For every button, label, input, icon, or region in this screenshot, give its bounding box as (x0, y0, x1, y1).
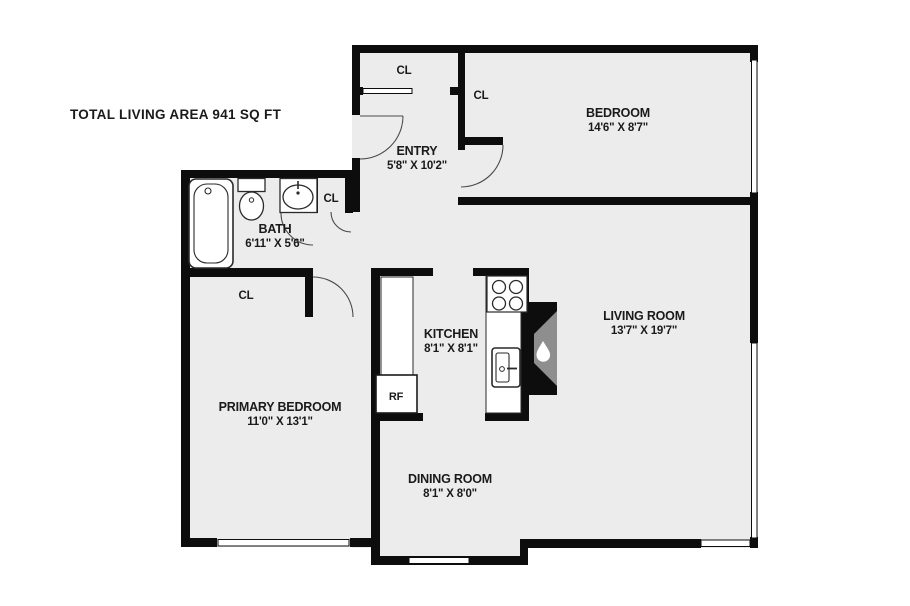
primary-name: PRIMARY BEDROOM (219, 400, 342, 415)
refrigerator-label: RF (389, 391, 403, 403)
floor-plan: TOTAL LIVING AREA 941 SQ FT ENTRY 5'8" X… (0, 0, 910, 606)
door-arc-bedroom (461, 145, 503, 187)
door-arc-primary (313, 277, 353, 317)
room-label-bedroom: BEDROOM 14'6" X 8'7" (586, 106, 650, 136)
living-name: LIVING ROOM (603, 309, 685, 324)
window-dining-south (409, 558, 469, 564)
window-living-south (701, 540, 750, 547)
entry-dims: 5'8" X 10'2" (387, 159, 447, 174)
closet-entry-bifold (363, 89, 412, 94)
room-label-entry: ENTRY 5'8" X 10'2" (387, 144, 447, 174)
kitchen-sink-icon (492, 348, 520, 387)
toilet-icon (238, 179, 265, 221)
stove-icon (487, 276, 527, 312)
closet-label-hall: CL (324, 193, 339, 205)
bath-dims: 6'11" X 5'6" (245, 237, 304, 252)
bath-name: BATH (245, 222, 304, 237)
closet-label-entry: CL (397, 65, 412, 77)
window-bedroom-east (752, 60, 758, 193)
bathtub-icon (189, 179, 233, 268)
living-dims: 13'7" X 19'7" (603, 324, 685, 339)
dining-dims: 8'1" X 8'0" (408, 487, 492, 502)
room-label-primary: PRIMARY BEDROOM 11'0" X 13'1" (219, 400, 342, 430)
bath-sink-icon (280, 179, 317, 213)
primary-dims: 11'0" X 13'1" (219, 415, 342, 430)
fireplace (529, 302, 557, 395)
room-label-kitchen: KITCHEN 8'1" X 8'1" (424, 327, 478, 357)
entry-name: ENTRY (387, 144, 447, 159)
fixtures-overlay (0, 0, 910, 606)
closet-label-bedroom: CL (474, 90, 489, 102)
kitchen-name: KITCHEN (424, 327, 478, 342)
kitchen-counter-left (381, 277, 413, 375)
room-label-dining: DINING ROOM 8'1" X 8'0" (408, 472, 492, 502)
window-primary-south (218, 540, 349, 547)
kitchen-dims: 8'1" X 8'1" (424, 342, 478, 357)
bedroom-name: BEDROOM (586, 106, 650, 121)
door-arc-hall-closet (331, 212, 351, 232)
room-label-bath: BATH 6'11" X 5'6" (245, 222, 304, 252)
room-label-living: LIVING ROOM 13'7" X 19'7" (603, 309, 685, 339)
closet-label-primary: CL (239, 290, 254, 302)
window-living-east (752, 343, 758, 538)
total-living-area-title: TOTAL LIVING AREA 941 SQ FT (70, 107, 281, 122)
bedroom-dims: 14'6" X 8'7" (586, 121, 650, 136)
dining-name: DINING ROOM (408, 472, 492, 487)
